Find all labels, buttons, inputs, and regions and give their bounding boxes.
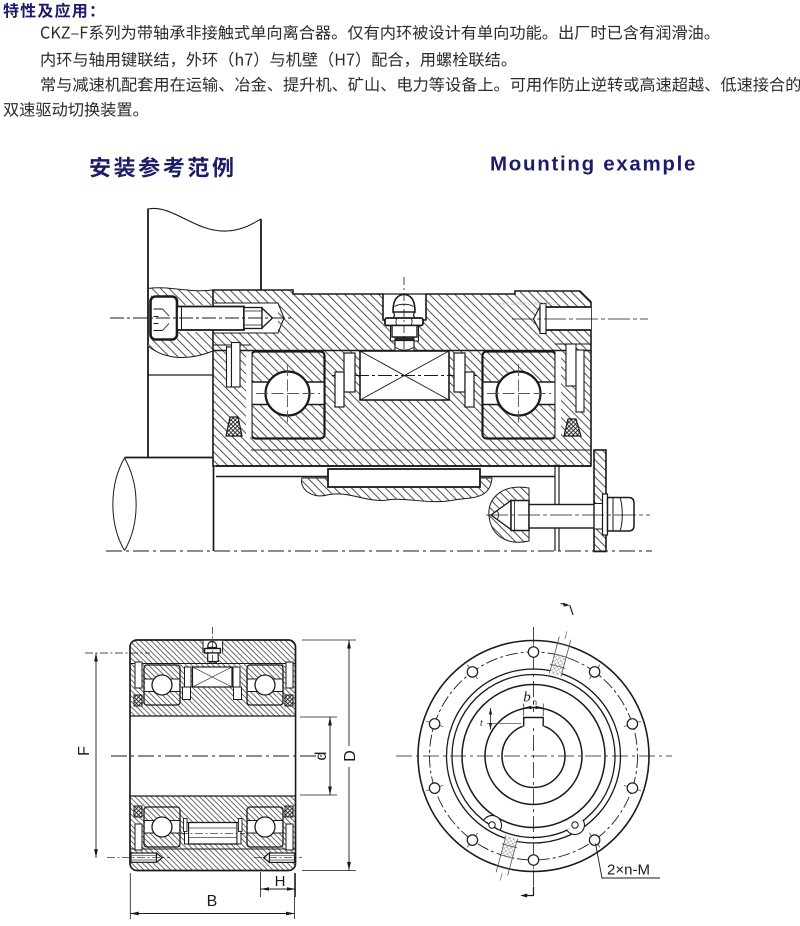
svg-text:H: H [275,873,286,890]
svg-text:B: B [207,893,218,910]
svg-text:2×n-M: 2×n-M [607,862,650,879]
svg-text:d: d [313,752,330,761]
svg-text:D: D [342,750,359,762]
svg-text:Mounting example: Mounting example [490,153,697,176]
svg-text:t: t [480,718,483,729]
svg-text:n: n [533,698,537,707]
svg-text:CKZ-F SERIES CAM CLUTCH: CKZ-F SERIES CAM CLUTCH [496,301,558,306]
svg-text:b: b [523,690,531,706]
svg-text:F: F [76,746,93,756]
